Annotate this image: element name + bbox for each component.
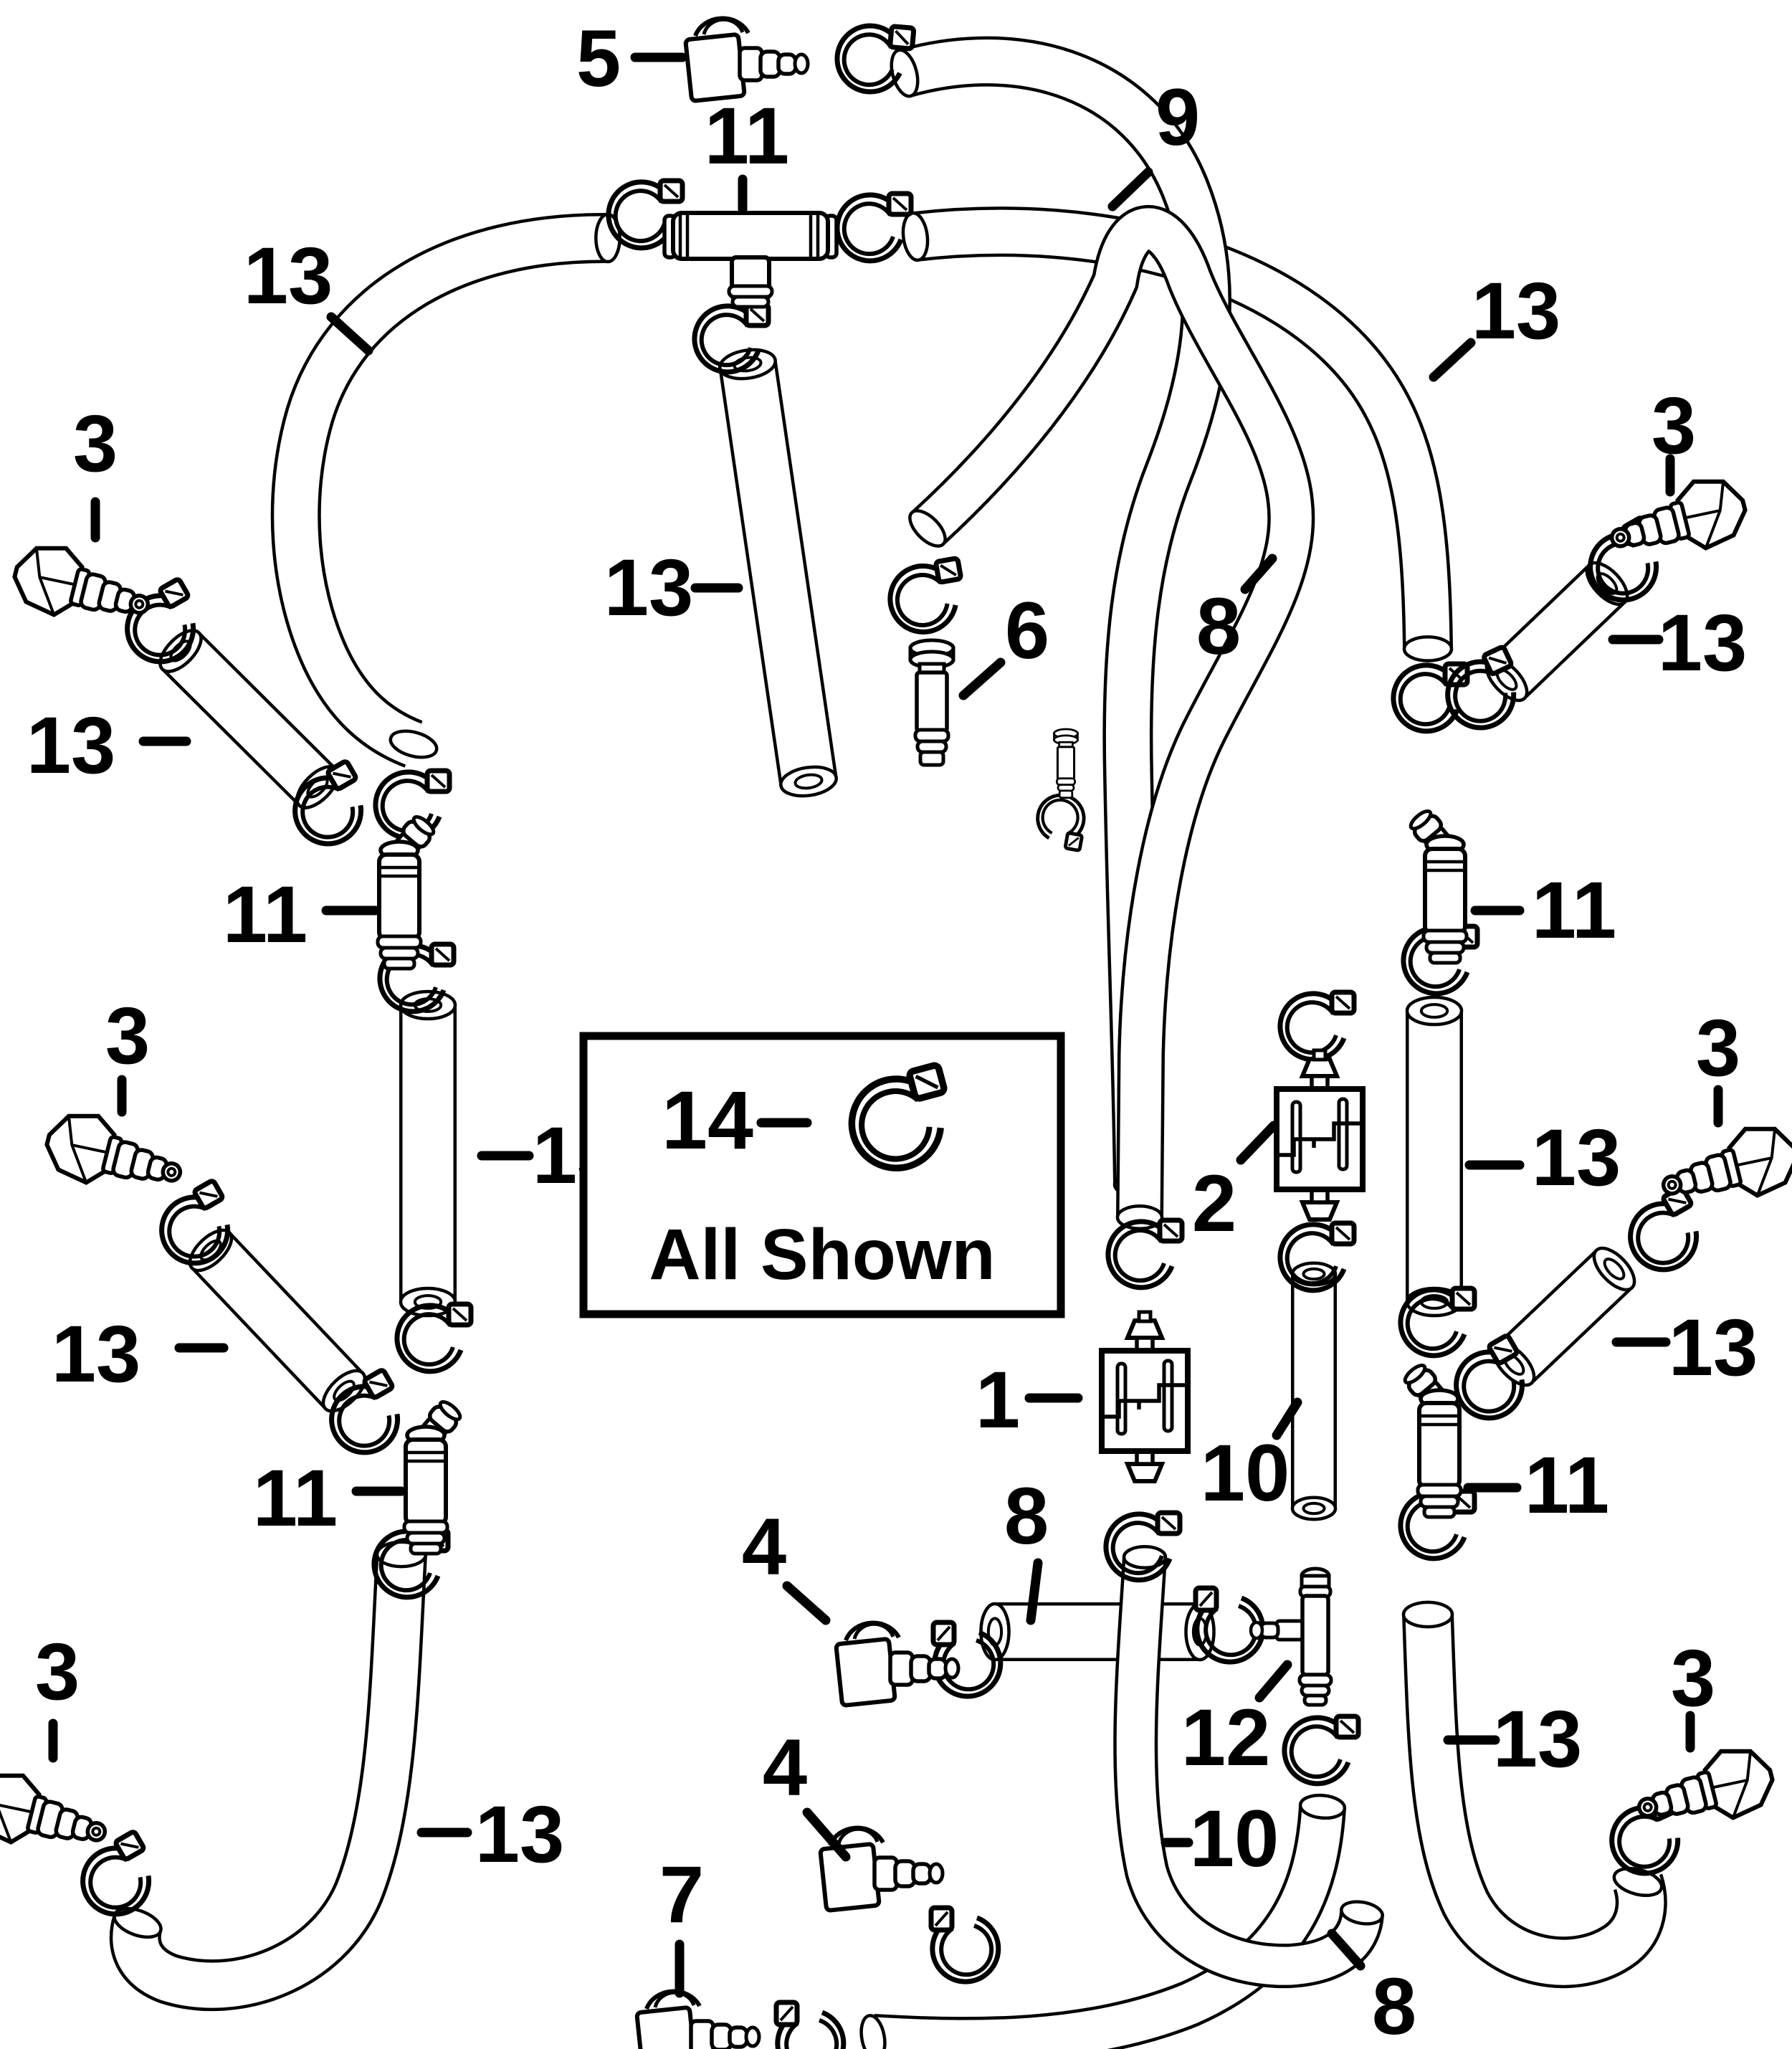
callout-label[interactable]: 7 bbox=[659, 1850, 704, 1939]
callout-label[interactable]: 11 bbox=[223, 870, 308, 959]
callout-label[interactable]: 13 bbox=[1532, 1113, 1621, 1202]
callout-label[interactable]: 2 bbox=[1192, 1159, 1236, 1248]
parts-diagram-page: 5119131331311313131131374812410810126138… bbox=[0, 0, 1792, 2049]
callout-label[interactable]: 11 bbox=[705, 91, 789, 181]
legend-number: 14 bbox=[662, 1075, 753, 1166]
callout-label[interactable]: 13 bbox=[27, 700, 116, 790]
callout-label[interactable]: 13 bbox=[244, 231, 333, 320]
tube-bore bbox=[1303, 1269, 1324, 1279]
legend-note: All Shown bbox=[649, 1214, 995, 1295]
callout-label[interactable]: 13 bbox=[1669, 1303, 1758, 1392]
callout-label[interactable]: 3 bbox=[1671, 1633, 1715, 1723]
tube-bore bbox=[1303, 1503, 1324, 1513]
callout-label[interactable]: 3 bbox=[73, 399, 118, 488]
callout-label[interactable]: 13 bbox=[475, 1789, 565, 1879]
callout-label[interactable]: 3 bbox=[1652, 381, 1696, 470]
callout-label[interactable]: 13 bbox=[604, 543, 694, 632]
small-barb-fitting bbox=[1054, 729, 1078, 798]
callout-label[interactable]: 6 bbox=[1005, 586, 1049, 675]
callout-label[interactable]: 13 bbox=[1472, 266, 1561, 356]
callout-label[interactable]: 4 bbox=[763, 1723, 807, 1812]
callout-label[interactable]: 1 bbox=[976, 1355, 1020, 1445]
callout-label[interactable]: 3 bbox=[1696, 1003, 1740, 1093]
callout-label[interactable]: 11 bbox=[1532, 865, 1616, 955]
legend-box-14: 14All Shown bbox=[583, 1036, 1061, 1314]
callout-label[interactable]: 13 bbox=[1658, 598, 1748, 688]
hose-open-end bbox=[1403, 1602, 1452, 1627]
callout-label[interactable]: 3 bbox=[35, 1627, 80, 1716]
callout-label[interactable]: 10 bbox=[1201, 1428, 1290, 1518]
callout-label[interactable]: 9 bbox=[1155, 72, 1200, 162]
callout-label[interactable]: 13 bbox=[52, 1309, 141, 1399]
tube-bore bbox=[1421, 1004, 1447, 1017]
callout-label[interactable]: 5 bbox=[576, 14, 621, 103]
callout-label[interactable]: 3 bbox=[105, 991, 150, 1080]
callout-label[interactable]: 11 bbox=[253, 1453, 338, 1543]
callout-label[interactable]: 13 bbox=[1493, 1694, 1583, 1784]
callout-label[interactable]: 8 bbox=[1196, 581, 1241, 671]
callout-label[interactable]: 4 bbox=[742, 1502, 786, 1592]
straight-fitting-6 bbox=[910, 640, 953, 765]
callout-label[interactable]: 11 bbox=[1525, 1440, 1609, 1530]
callout-label[interactable]: 12 bbox=[1181, 1693, 1271, 1782]
callout-label[interactable]: 8 bbox=[1004, 1471, 1049, 1561]
hose-open-end bbox=[1404, 637, 1452, 660]
callout-label[interactable]: 8 bbox=[1372, 1962, 1416, 2049]
hose-routing-diagram: 5119131331311313131131374812410810126138… bbox=[0, 0, 1792, 2049]
callout-label[interactable]: 10 bbox=[1190, 1794, 1279, 1883]
